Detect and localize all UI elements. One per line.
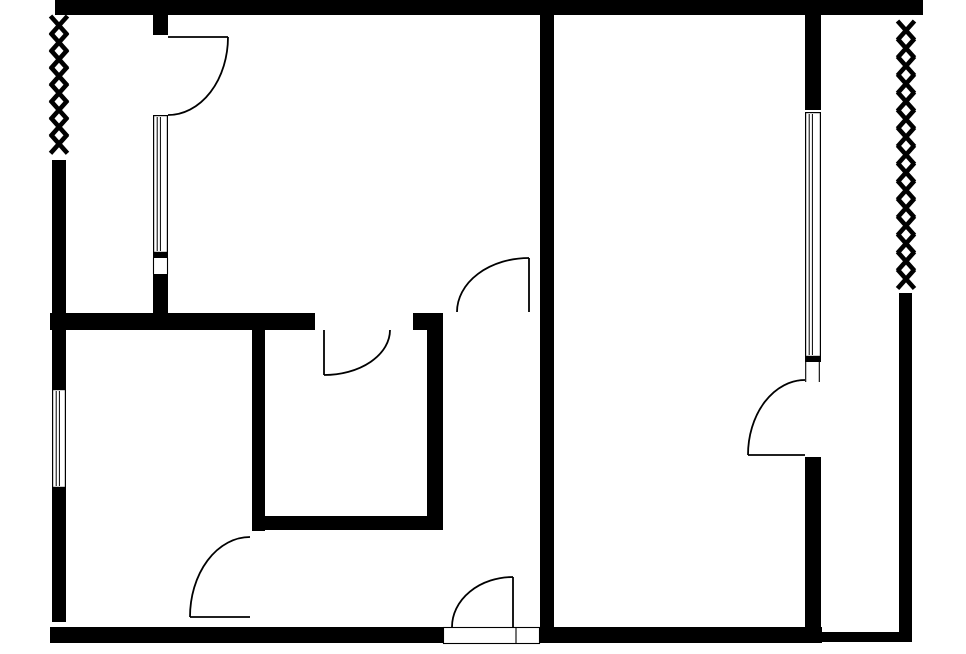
wall-left-upper — [52, 160, 66, 389]
wall-right-outer — [899, 293, 912, 642]
window-right-wall — [806, 113, 821, 357]
wall-bottom-right — [540, 627, 822, 643]
wall-central — [540, 15, 554, 627]
entry-threshold — [444, 628, 540, 644]
floor-plan-svg — [0, 0, 966, 654]
wall-balcony-bottom — [821, 632, 912, 642]
floor-plan-canvas — [0, 0, 966, 654]
wall-bottom-left — [50, 627, 443, 643]
wall-left-mid-segment — [153, 274, 168, 314]
wall-right-room-lower — [805, 457, 821, 632]
wall-inner-room-bottom — [252, 516, 443, 530]
wall-interior-horizontal — [50, 313, 315, 330]
window-upper-left-bottom-cap — [153, 253, 168, 258]
window-right-bottom-cap — [805, 357, 821, 362]
wall-inner-room-right — [427, 314, 443, 530]
wall-top — [55, 0, 923, 15]
wall-right-room-upper — [805, 15, 821, 110]
wall-stub-upper-left-door — [153, 15, 168, 35]
wall-left-lower — [52, 488, 66, 622]
wall-inner-room-left — [252, 329, 265, 531]
